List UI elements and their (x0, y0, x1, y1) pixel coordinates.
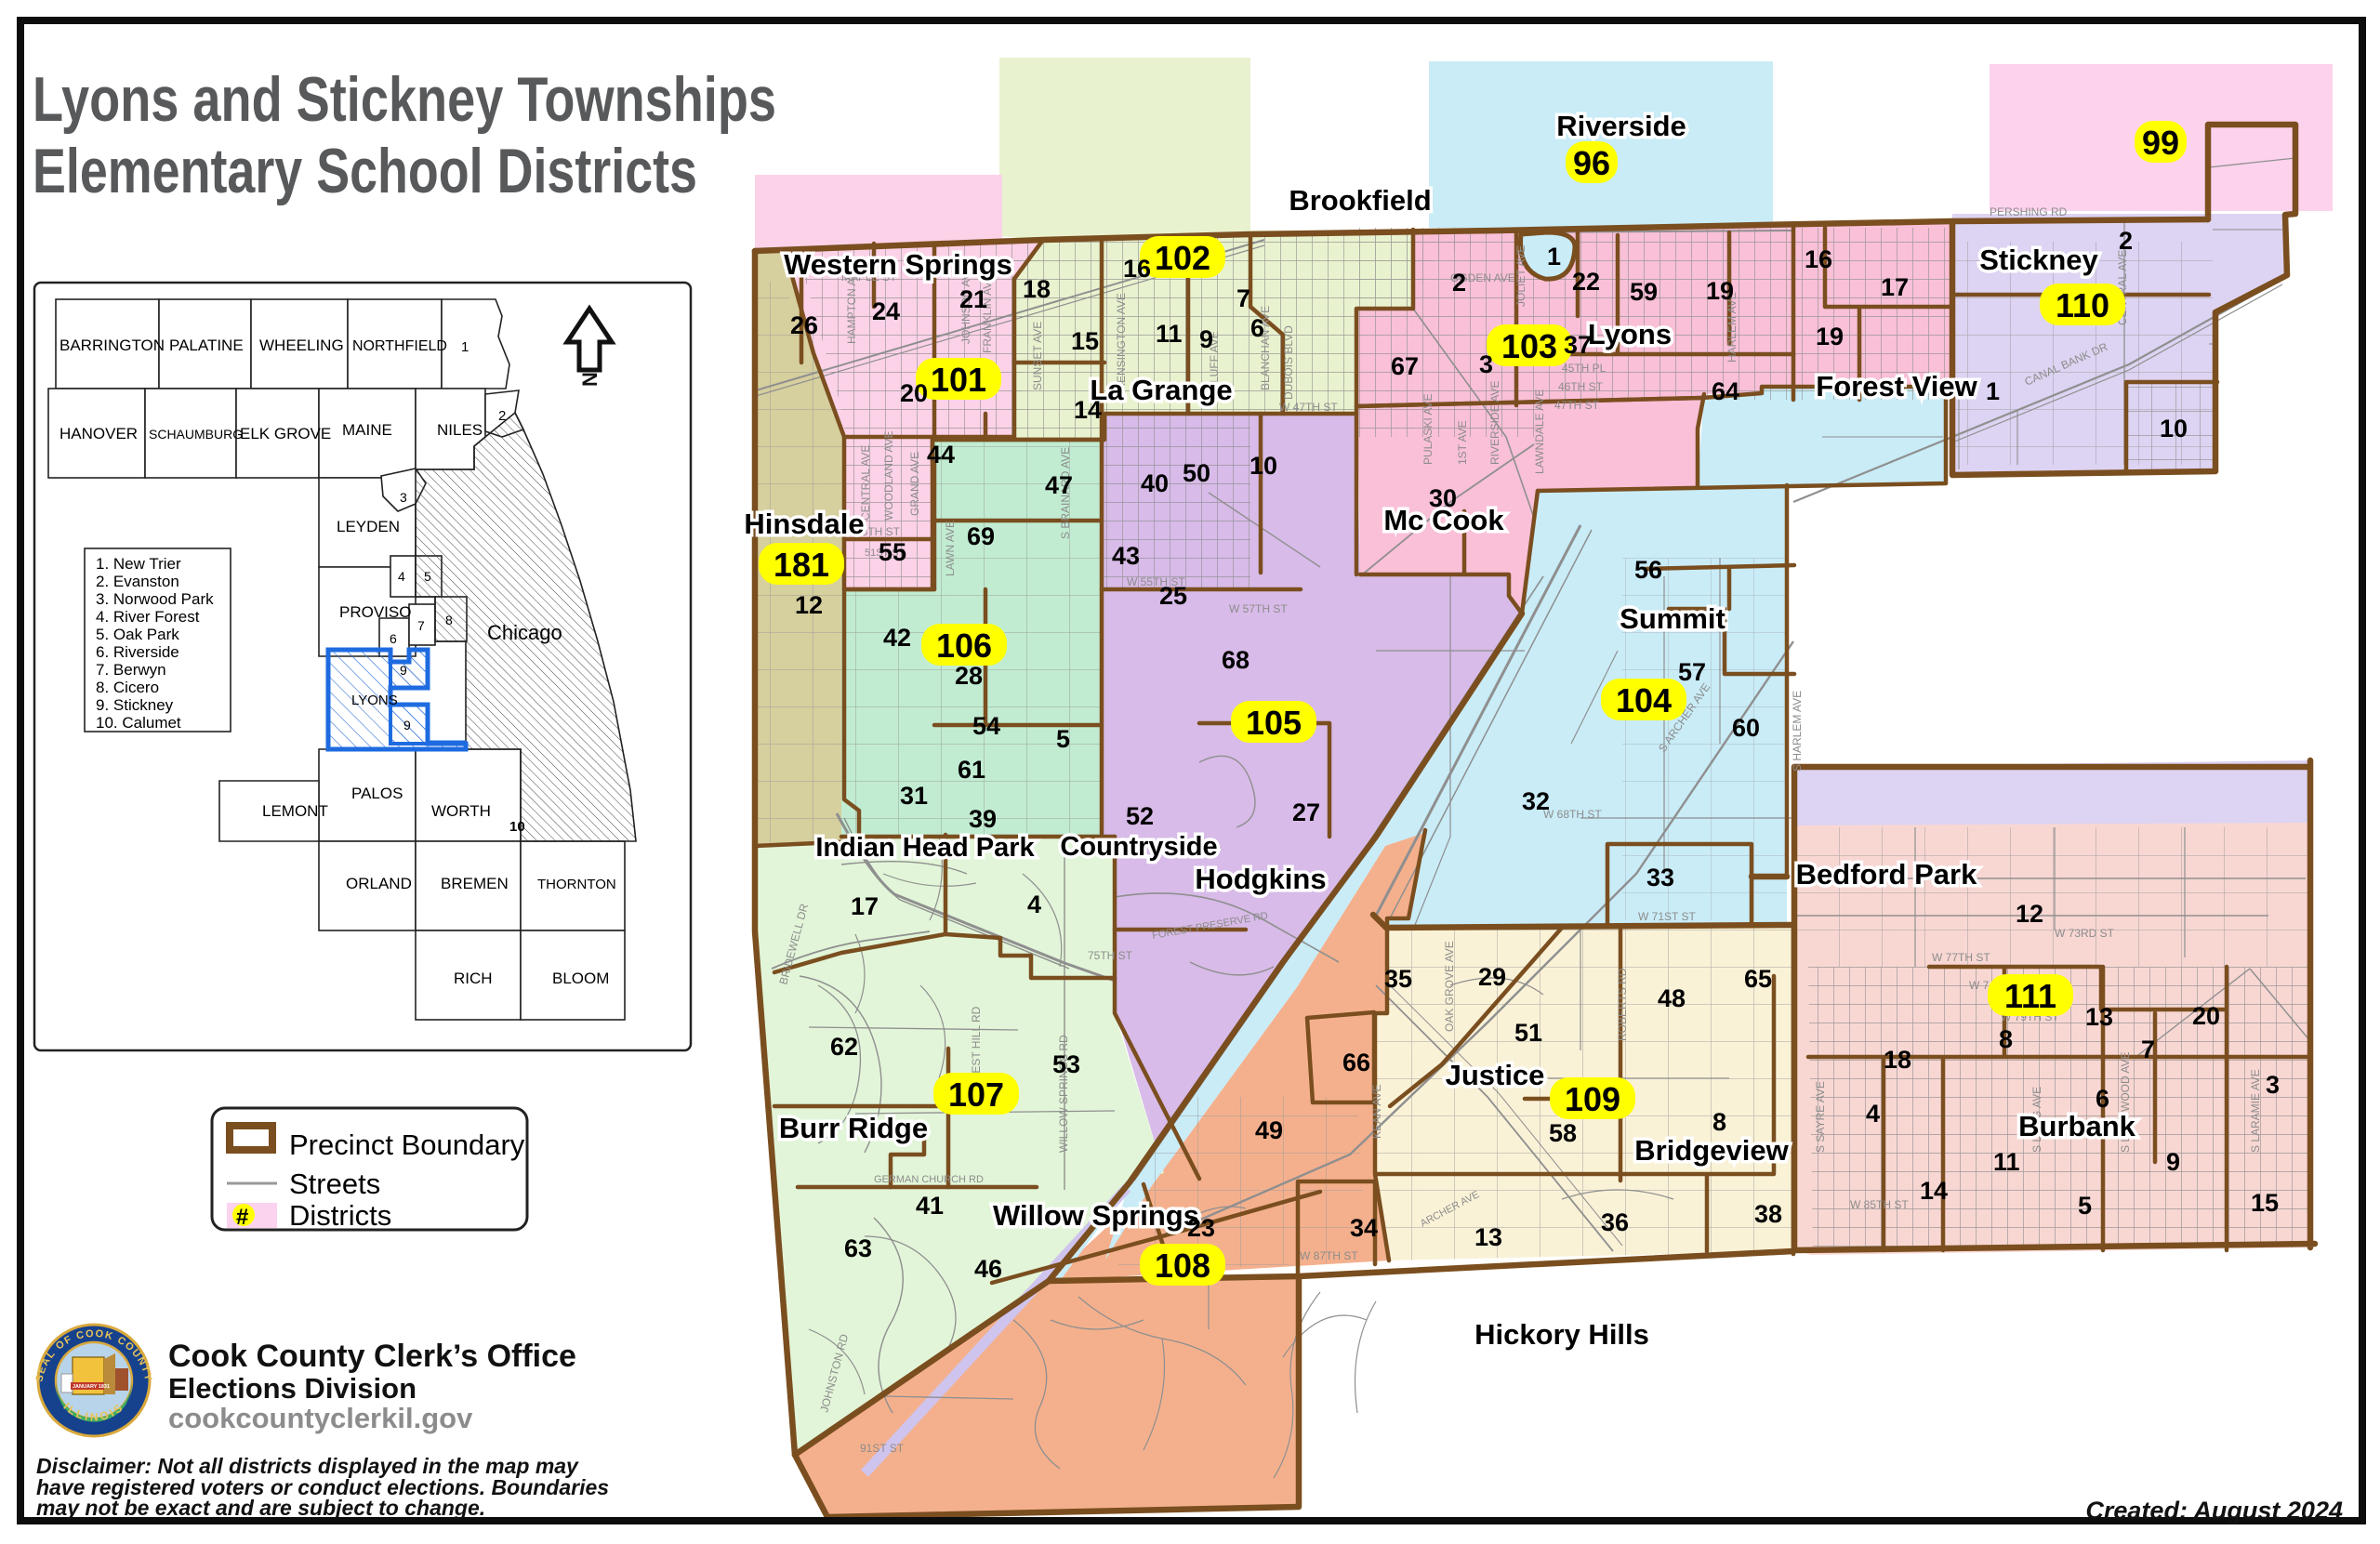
svg-text:Created: August 2024: Created: August 2024 (2085, 1497, 2343, 1524)
svg-text:S LARAMIE AVE: S LARAMIE AVE (2249, 1069, 2262, 1153)
svg-text:44: 44 (927, 441, 955, 468)
svg-text:47: 47 (1045, 471, 1073, 499)
svg-text:21: 21 (959, 285, 987, 313)
svg-text:OAK GROVE AVE: OAK GROVE AVE (1443, 941, 1456, 1032)
svg-text:28: 28 (955, 662, 983, 690)
svg-text:1. New Trier: 1. New Trier (96, 555, 181, 573)
svg-text:WOODLAND AVE: WOODLAND AVE (882, 431, 895, 521)
svg-text:56: 56 (1634, 556, 1662, 584)
svg-text:DUBOIS BLVD: DUBOIS BLVD (1282, 325, 1295, 400)
svg-text:3. Norwood Park: 3. Norwood Park (96, 590, 214, 608)
svg-text:104: 104 (1616, 681, 1672, 719)
svg-text:SCHAUMBURG: SCHAUMBURG (149, 427, 243, 442)
svg-text:Hickory Hills: Hickory Hills (1474, 1318, 1649, 1351)
svg-text:110: 110 (2056, 286, 2109, 324)
svg-text:40: 40 (1141, 469, 1169, 497)
svg-text:1ST AVE: 1ST AVE (1456, 420, 1469, 465)
svg-text:49: 49 (1255, 1116, 1283, 1144)
svg-text:26: 26 (790, 311, 818, 339)
svg-text:Chicago: Chicago (487, 621, 562, 644)
svg-text:45TH PL: 45TH PL (1562, 362, 1606, 375)
svg-text:48: 48 (1658, 984, 1686, 1012)
svg-text:NORTHFIELD: NORTHFIELD (352, 338, 447, 354)
svg-text:46TH ST: 46TH ST (1558, 380, 1604, 393)
svg-text:51: 51 (1514, 1019, 1542, 1047)
svg-text:Bedford Park: Bedford Park (1796, 858, 1977, 891)
svg-text:W 73RD ST: W 73RD ST (2055, 927, 2115, 940)
svg-text:41: 41 (916, 1192, 944, 1220)
svg-text:1: 1 (1986, 377, 2000, 405)
svg-text:W 85TH ST: W 85TH ST (1850, 1198, 1909, 1211)
svg-text:Burr Ridge: Burr Ridge (779, 1112, 928, 1144)
svg-text:W 71ST ST: W 71ST ST (1638, 910, 1696, 923)
svg-text:16: 16 (1805, 245, 1832, 273)
svg-text:Hinsdale: Hinsdale (744, 508, 864, 540)
svg-text:101: 101 (931, 361, 986, 399)
svg-text:LEYDEN: LEYDEN (337, 518, 400, 535)
svg-text:8. Cicero: 8. Cicero (96, 679, 159, 696)
svg-text:LYONS: LYONS (351, 693, 398, 708)
svg-text:14: 14 (1920, 1177, 1948, 1205)
svg-text:62: 62 (830, 1033, 858, 1061)
svg-text:Lyons: Lyons (1588, 318, 1672, 350)
svg-text:W 87TH ST: W 87TH ST (1300, 1249, 1358, 1262)
svg-text:20: 20 (900, 379, 928, 407)
svg-text:S SAYRE AVE: S SAYRE AVE (1814, 1081, 1827, 1153)
svg-text:63: 63 (844, 1234, 872, 1262)
svg-text:Western Springs: Western Springs (784, 248, 1012, 281)
svg-text:102: 102 (1155, 239, 1210, 277)
svg-text:3: 3 (400, 490, 407, 505)
svg-text:GRAND AVE: GRAND AVE (908, 452, 921, 516)
svg-text:66: 66 (1342, 1049, 1370, 1076)
svg-text:2: 2 (1452, 269, 1466, 297)
svg-text:PALATINE: PALATINE (169, 337, 244, 354)
svg-text:PROVISO: PROVISO (339, 603, 411, 621)
svg-text:Elementary School Districts: Elementary School Districts (33, 136, 697, 206)
svg-text:MAINE: MAINE (342, 421, 392, 439)
svg-text:10: 10 (509, 819, 525, 835)
svg-text:64: 64 (1712, 377, 1739, 405)
svg-text:47TH ST: 47TH ST (1554, 399, 1600, 412)
svg-text:Lyons and Stickney Townships: Lyons and Stickney Townships (33, 64, 776, 135)
svg-text:9: 9 (403, 718, 411, 732)
svg-text:Bridgeview: Bridgeview (1634, 1134, 1789, 1167)
svg-text:12: 12 (2016, 900, 2043, 928)
svg-text:30: 30 (1429, 484, 1457, 512)
svg-text:31: 31 (900, 782, 928, 810)
svg-text:Hodgkins: Hodgkins (1195, 863, 1326, 895)
svg-text:N: N (578, 372, 602, 387)
svg-text:17: 17 (1881, 273, 1909, 301)
svg-text:59: 59 (1630, 278, 1658, 306)
svg-text:15: 15 (1071, 327, 1099, 355)
svg-text:105: 105 (1246, 704, 1302, 742)
svg-text:5: 5 (1056, 725, 1070, 753)
svg-text:9: 9 (2166, 1148, 2180, 1176)
svg-text:34: 34 (1350, 1214, 1378, 1242)
svg-text:12: 12 (795, 591, 823, 619)
svg-text:Brookfield: Brookfield (1289, 184, 1431, 217)
svg-text:4: 4 (398, 569, 405, 584)
svg-text:10: 10 (2160, 415, 2188, 442)
svg-text:11: 11 (1156, 320, 1183, 348)
svg-text:cookcountyclerkil.gov: cookcountyclerkil.gov (168, 1402, 473, 1434)
svg-text:22: 22 (1572, 268, 1600, 296)
svg-text:55: 55 (879, 538, 906, 566)
svg-text:LAWNDALE AVE: LAWNDALE AVE (1533, 389, 1546, 474)
svg-text:Streets: Streets (289, 1168, 380, 1200)
svg-text:9: 9 (400, 663, 407, 678)
svg-text:6. Riverside: 6. Riverside (96, 643, 179, 661)
svg-text:32: 32 (1522, 787, 1550, 815)
svg-text:RICH: RICH (454, 970, 493, 987)
svg-text:54: 54 (972, 712, 1000, 740)
svg-text:106: 106 (936, 627, 992, 665)
svg-text:43: 43 (1112, 542, 1140, 570)
svg-text:THORNTON: THORNTON (537, 877, 616, 892)
svg-text:19: 19 (1706, 277, 1734, 305)
svg-text:109: 109 (1565, 1080, 1620, 1118)
svg-text:8: 8 (1712, 1108, 1726, 1136)
svg-text:5: 5 (424, 569, 431, 584)
svg-text:96: 96 (1573, 144, 1610, 182)
svg-text:BARRINGTON: BARRINGTON (59, 337, 165, 354)
svg-text:LAWN AVE: LAWN AVE (944, 521, 957, 576)
svg-text:18: 18 (1884, 1046, 1911, 1074)
svg-text:13: 13 (1474, 1223, 1502, 1251)
svg-text:4: 4 (1027, 891, 1041, 918)
svg-text:68: 68 (1222, 646, 1249, 674)
svg-text:75TH ST: 75TH ST (1088, 949, 1133, 962)
svg-text:53: 53 (1052, 1050, 1080, 1078)
svg-text:15: 15 (2251, 1189, 2279, 1217)
svg-text:10: 10 (1249, 452, 1277, 480)
svg-text:29: 29 (1478, 963, 1506, 991)
svg-text:7: 7 (417, 618, 425, 633)
svg-text:16: 16 (1123, 255, 1151, 283)
svg-text:33: 33 (1646, 864, 1674, 891)
svg-text:Countryside: Countryside (1060, 832, 1217, 862)
svg-text:8: 8 (445, 613, 453, 627)
svg-text:4. River Forest: 4. River Forest (96, 608, 200, 626)
svg-text:ELK GROVE: ELK GROVE (240, 425, 331, 442)
svg-text:50: 50 (1183, 459, 1210, 487)
svg-text:may not be exact and are subje: may not be exact and are subject to chan… (36, 1496, 485, 1520)
svg-text:HANOVER: HANOVER (59, 425, 138, 442)
svg-text:69: 69 (967, 522, 995, 550)
svg-text:36: 36 (1601, 1208, 1629, 1236)
svg-text:20: 20 (2192, 1002, 2220, 1030)
svg-text:57: 57 (1678, 658, 1706, 686)
svg-text:2: 2 (498, 408, 506, 424)
svg-text:PALOS: PALOS (351, 785, 403, 802)
svg-text:107: 107 (948, 1076, 1004, 1114)
svg-text:18: 18 (1023, 275, 1051, 303)
svg-text:BREMEN: BREMEN (441, 875, 509, 892)
svg-text:GERMAN CHURCH RD: GERMAN CHURCH RD (874, 1174, 984, 1185)
svg-text:39: 39 (969, 805, 997, 833)
svg-text:W 77TH ST: W 77TH ST (1932, 951, 1990, 964)
svg-text:SUNSET AVE: SUNSET AVE (1031, 322, 1044, 390)
svg-text:60: 60 (1732, 714, 1760, 742)
svg-text:Justice: Justice (1446, 1059, 1545, 1091)
svg-text:111: 111 (2004, 977, 2056, 1015)
svg-text:23: 23 (1187, 1214, 1215, 1242)
svg-text:35: 35 (1384, 965, 1412, 993)
svg-text:Indian Head Park: Indian Head Park (815, 833, 1035, 863)
svg-text:5: 5 (2078, 1192, 2092, 1220)
svg-text:17: 17 (851, 892, 879, 920)
svg-text:6: 6 (390, 631, 397, 646)
svg-text:11: 11 (1993, 1148, 2020, 1176)
svg-text:5. Oak Park: 5. Oak Park (96, 626, 179, 643)
svg-text:LEMONT: LEMONT (262, 802, 328, 820)
svg-text:Elections Division: Elections Division (168, 1372, 416, 1405)
svg-text:7: 7 (2141, 1036, 2155, 1063)
svg-text:67: 67 (1391, 352, 1419, 380)
svg-text:6: 6 (2096, 1085, 2109, 1113)
svg-text:7: 7 (1236, 284, 1250, 312)
svg-text:42: 42 (883, 624, 911, 652)
svg-text:99: 99 (2142, 124, 2179, 162)
svg-text:61: 61 (958, 756, 985, 784)
svg-text:Cook County Clerk’s Office: Cook County Clerk’s Office (168, 1339, 576, 1374)
svg-text:38: 38 (1754, 1200, 1782, 1228)
svg-text:58: 58 (1549, 1119, 1577, 1147)
svg-text:JOLIET AVE: JOLIET AVE (1514, 245, 1527, 307)
svg-text:BLOOM: BLOOM (552, 970, 609, 987)
svg-text:37: 37 (1564, 331, 1592, 359)
svg-text:Districts: Districts (289, 1199, 391, 1232)
svg-text:PULASKI AVE: PULASKI AVE (1421, 394, 1435, 465)
svg-text:ROBERTS RD: ROBERTS RD (1616, 968, 1629, 1041)
svg-text:9. Stickney: 9. Stickney (96, 696, 174, 714)
svg-text:Stickney: Stickney (1979, 244, 2098, 276)
svg-text:7. Berwyn: 7. Berwyn (96, 661, 166, 679)
svg-text:ORLAND: ORLAND (346, 875, 412, 892)
svg-text:52: 52 (1126, 802, 1154, 830)
svg-text:Summit: Summit (1620, 602, 1725, 635)
svg-text:W 57TH ST: W 57TH ST (1229, 602, 1288, 615)
svg-text:Burbank: Burbank (2018, 1110, 2136, 1142)
svg-text:2. Evanston: 2. Evanston (96, 573, 179, 590)
svg-text:13: 13 (2085, 1003, 2113, 1031)
svg-text:W 47TH ST: W 47TH ST (1279, 401, 1338, 414)
svg-text:#: # (236, 1205, 248, 1230)
svg-text:181: 181 (773, 546, 829, 584)
svg-text:14: 14 (1074, 396, 1102, 424)
svg-text:19: 19 (1816, 323, 1844, 350)
svg-text:La Grange: La Grange (1090, 374, 1232, 406)
svg-text:Forest View: Forest View (1816, 370, 1977, 402)
svg-text:27: 27 (1292, 798, 1320, 826)
svg-text:Riverside: Riverside (1556, 110, 1686, 142)
svg-text:108: 108 (1155, 1247, 1210, 1285)
svg-text:8: 8 (1999, 1025, 2013, 1053)
svg-text:Precinct Boundary: Precinct Boundary (289, 1128, 525, 1161)
svg-text:3: 3 (2266, 1071, 2280, 1099)
svg-text:91ST ST: 91ST ST (860, 1442, 905, 1455)
svg-text:46: 46 (974, 1255, 1002, 1283)
svg-text:Willow Springs: Willow Springs (993, 1199, 1199, 1232)
svg-text:JANUARY 1831: JANUARY 1831 (73, 1384, 110, 1390)
svg-text:1: 1 (1547, 243, 1561, 271)
svg-text:KEAN AVE: KEAN AVE (1370, 1085, 1383, 1139)
svg-text:65: 65 (1744, 965, 1772, 993)
svg-text:W 68TH ST: W 68TH ST (1543, 808, 1602, 821)
svg-text:2: 2 (2119, 227, 2133, 255)
svg-text:103: 103 (1501, 327, 1557, 365)
svg-text:25: 25 (1159, 582, 1187, 610)
svg-text:24: 24 (872, 297, 900, 325)
svg-text:10. Calumet: 10. Calumet (96, 714, 181, 732)
svg-text:PERSHING RD: PERSHING RD (1990, 205, 2068, 218)
svg-text:9: 9 (1199, 325, 1213, 353)
svg-text:NILES: NILES (437, 421, 483, 439)
svg-text:1: 1 (461, 339, 469, 355)
svg-text:RIVERSIDE AVE: RIVERSIDE AVE (1488, 381, 1501, 465)
svg-text:6: 6 (1250, 314, 1264, 342)
svg-text:WORTH: WORTH (431, 802, 491, 820)
svg-text:WHEELING: WHEELING (259, 337, 344, 354)
svg-text:3: 3 (1479, 350, 1493, 378)
svg-text:S HARLEM AVE: S HARLEM AVE (1791, 691, 1804, 772)
svg-text:4: 4 (1866, 1100, 1880, 1128)
